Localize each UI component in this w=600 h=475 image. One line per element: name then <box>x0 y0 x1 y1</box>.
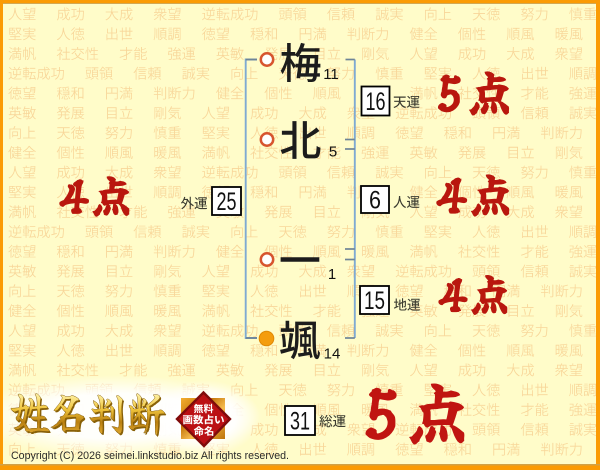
svg-text:16: 16 <box>366 88 386 116</box>
svg-text:11: 11 <box>323 66 339 83</box>
svg-text:Copyright (C) 2026 seimei.link: Copyright (C) 2026 seimei.linkstudio.biz… <box>11 450 289 462</box>
svg-text:6: 6 <box>369 187 381 215</box>
svg-text:1: 1 <box>328 266 336 283</box>
svg-text:25: 25 <box>217 188 237 216</box>
svg-text:5: 5 <box>329 144 337 161</box>
svg-text:31: 31 <box>290 408 310 436</box>
svg-text:15: 15 <box>364 287 385 315</box>
svg-text:14: 14 <box>324 346 341 363</box>
